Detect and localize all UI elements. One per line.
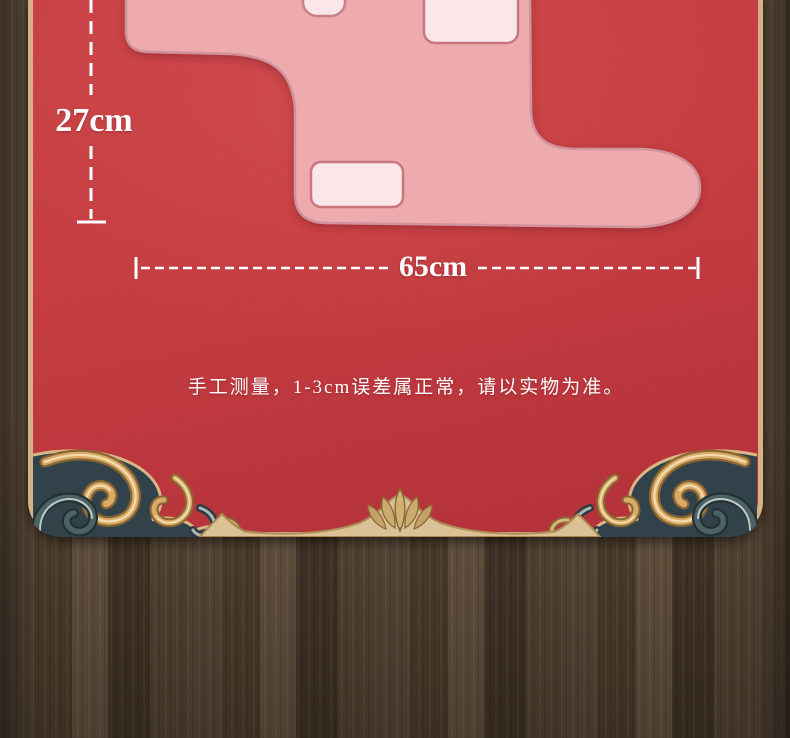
height-dimension-label: 27cm (42, 102, 146, 140)
product-measurement-image: 27cm 65cm 手工测量，1-3cm误差属正常，请以实物为准。 (0, 0, 790, 738)
measurement-note: 手工测量，1-3cm误差属正常，请以实物为准。 (16, 372, 790, 399)
width-dimension-label: 65cm (393, 250, 473, 284)
